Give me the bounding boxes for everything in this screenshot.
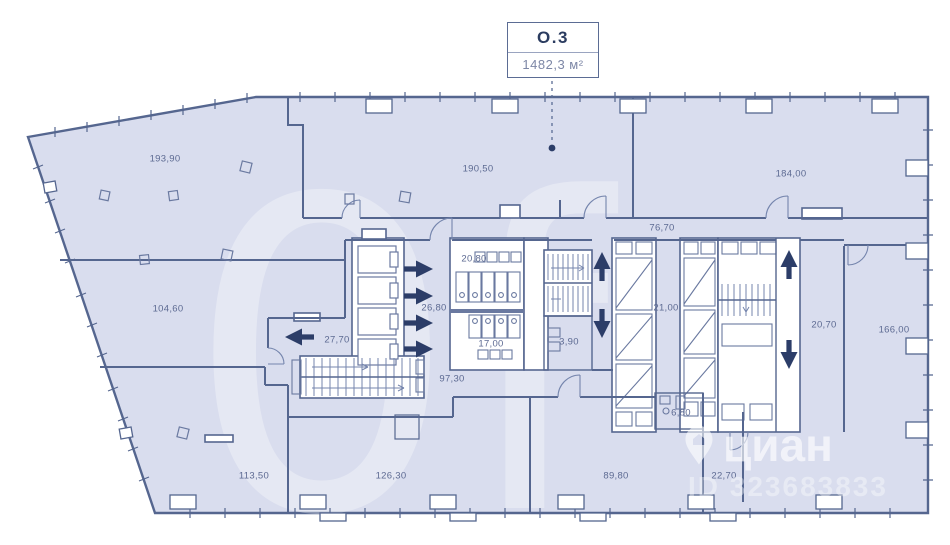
unit-label-box: О.3 1482,3 м² [507, 22, 599, 78]
shaft-room-b [680, 238, 718, 432]
leader-dot [549, 145, 556, 152]
unit-area: 1482,3 м² [508, 53, 598, 77]
unit-label: О.3 [508, 23, 598, 53]
floor-plan-svg: 0f [0, 0, 950, 545]
floor-plan-viewer: 0f [0, 0, 950, 545]
wall-cabinet [500, 205, 520, 218]
